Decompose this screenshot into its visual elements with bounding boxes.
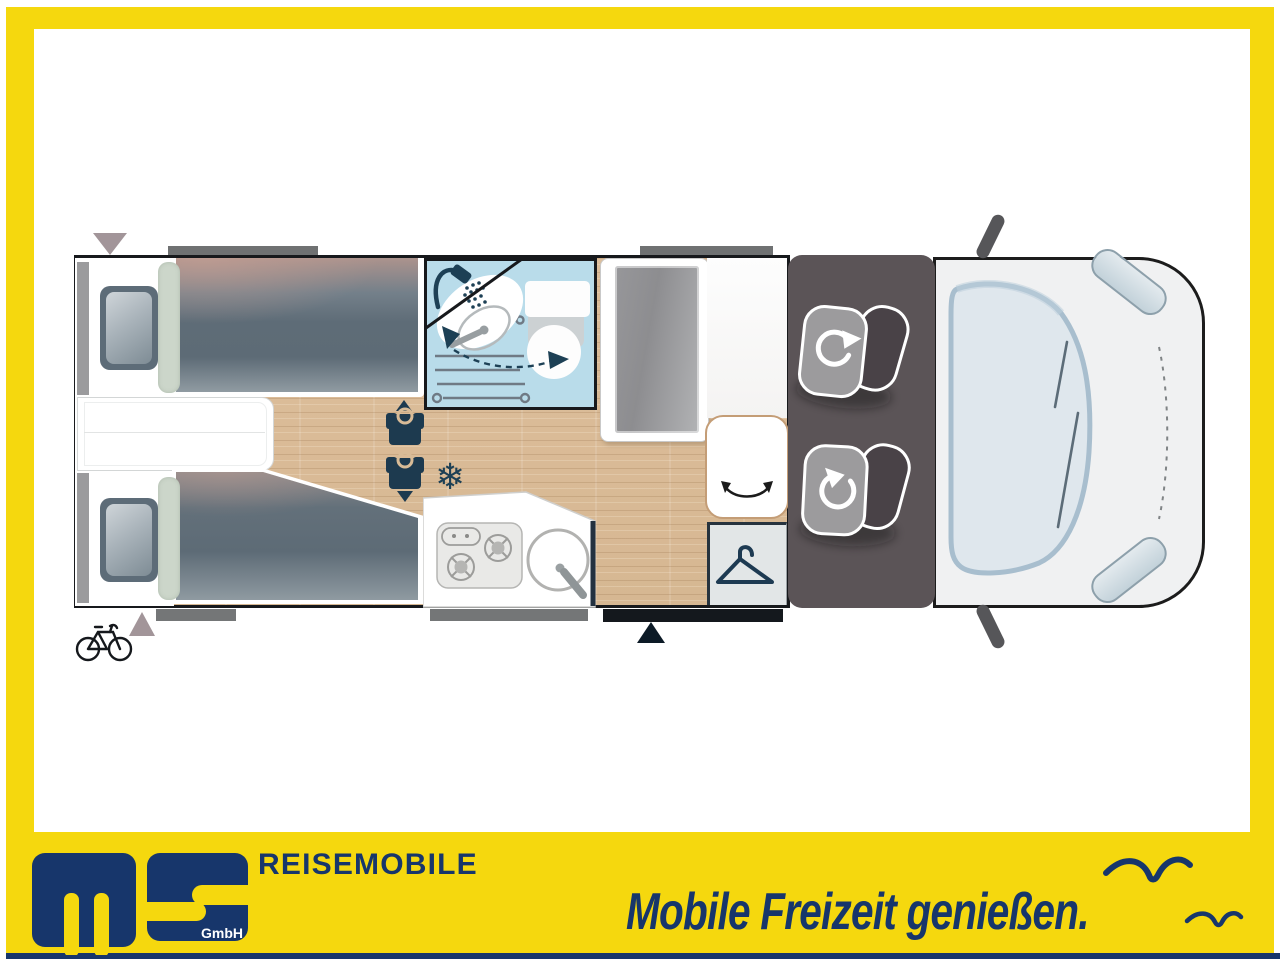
entry-arrow-icon [637, 622, 665, 643]
hanger-icon [710, 525, 787, 605]
sideboard [707, 258, 787, 418]
wardrobe [707, 522, 787, 605]
tagline: Mobile Freizeit genießen. [626, 882, 1089, 942]
bicycle-icon [74, 614, 136, 662]
living-area: ❄ [74, 255, 790, 608]
gmbh-label: GmbH [201, 925, 243, 941]
kitchen [423, 491, 597, 608]
wall-strip [77, 262, 89, 395]
entry-step [603, 609, 783, 622]
bird-icon [1102, 851, 1194, 889]
hob-icon [437, 523, 522, 588]
bird-icon [1184, 906, 1244, 934]
heater-vent-icon [385, 397, 425, 503]
fridge-cabinet [600, 258, 709, 442]
bed-top-duvet [176, 258, 418, 392]
swivel-seat-icon [794, 295, 914, 414]
snowflake-icon: ❄ [435, 460, 465, 496]
screenshot-root: ❄ [0, 0, 1280, 959]
hood-dashed-line [1159, 347, 1167, 519]
window-bar [156, 609, 236, 621]
pillow [100, 498, 158, 582]
cab-area [788, 255, 935, 608]
bed-bottom-headboard [158, 477, 180, 600]
bed-bottom-duvet [176, 472, 418, 600]
bed-top-headboard [158, 262, 180, 393]
pillow [100, 286, 158, 370]
swivel-seat-icon [799, 437, 915, 550]
cabinet-between-beds [77, 397, 274, 471]
brand-title: REISEMOBILE [258, 848, 478, 882]
door-arrow-icon [93, 233, 127, 255]
window-bar [430, 609, 588, 621]
ms-logo: GmbH [28, 849, 260, 955]
swivel-bench [705, 415, 789, 519]
bench-swivel-icon [707, 417, 787, 517]
wall-strip [77, 473, 89, 603]
bathroom [424, 258, 597, 410]
